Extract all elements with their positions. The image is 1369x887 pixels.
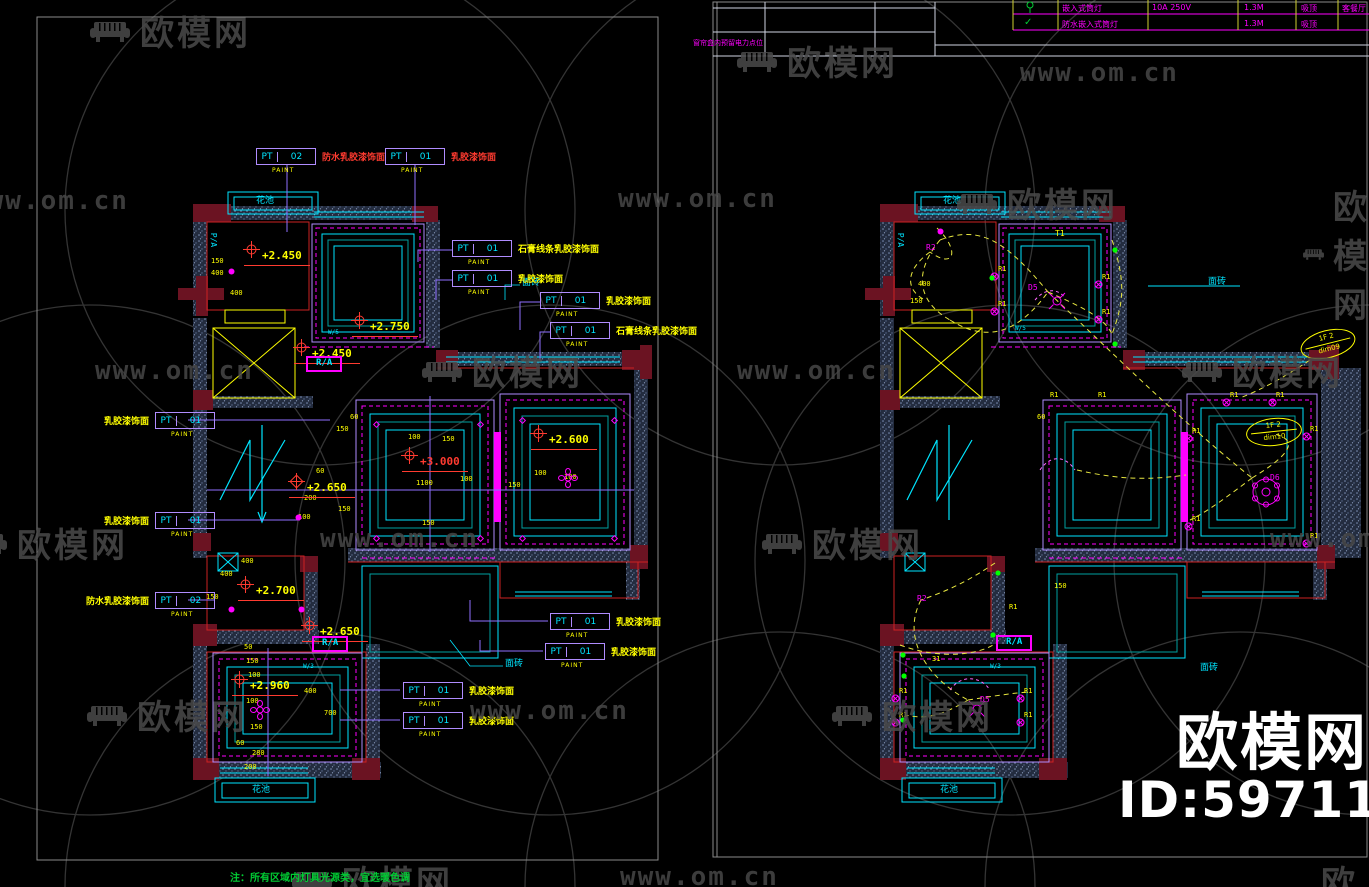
label-r1: R1 xyxy=(1050,392,1058,399)
paint-callout: PT01PAINT乳胶漆饰面 xyxy=(403,682,463,708)
downlight-diamond-symbol xyxy=(610,412,619,428)
device-dot xyxy=(228,262,235,278)
elevation-marker: +2.960 xyxy=(250,674,290,693)
paint-desc: 乳胶漆饰面 xyxy=(611,645,656,658)
label-700: 700 xyxy=(324,710,337,717)
junction-dot xyxy=(1112,334,1118,350)
label-400: 400 xyxy=(230,290,243,297)
legend-cell: 吸顶 xyxy=(1301,19,1317,30)
paint-code-box: PT01 xyxy=(155,412,215,429)
label-400: 400 xyxy=(220,571,233,578)
elevation-marker: +2.750 xyxy=(370,315,410,334)
site-url-watermark: www.om.cn xyxy=(1020,58,1179,88)
site-url-watermark: www.om.cn xyxy=(737,356,896,386)
ceiling-fan-symbol xyxy=(250,700,270,723)
label-31: 31 xyxy=(932,656,940,663)
label-花池: 花池 xyxy=(940,786,958,795)
paint-callout: PT01PAINT乳胶漆饰面 xyxy=(550,613,610,639)
legend-cell: 10A 250V xyxy=(1152,3,1191,12)
label-200: 200 xyxy=(244,764,257,771)
paint-code-box: PT02 xyxy=(155,592,215,609)
legend-symbol xyxy=(1024,1,1036,15)
downlight-diamond-symbol xyxy=(518,412,527,428)
note-lighting: 注：所有区域内灯具光源类，宜选暖色调 xyxy=(230,874,410,884)
downlight-symbol xyxy=(990,303,999,319)
junction-dot xyxy=(901,666,907,682)
lamp-d5-symbol xyxy=(1046,290,1068,315)
site-url-watermark: www.om.cn xyxy=(1270,524,1369,554)
paint-desc: 石膏线条乳胶漆饰面 xyxy=(518,242,599,255)
label-150: 150 xyxy=(910,298,923,305)
paint-code-box: PT01 xyxy=(403,682,463,699)
elevation-marker: +2.600 xyxy=(549,428,589,447)
label-60: 60 xyxy=(316,468,324,475)
return-air-tag: R/A xyxy=(312,636,348,652)
label-d5: D5 xyxy=(1028,284,1038,292)
label-r1: R1 xyxy=(1024,712,1032,719)
paint-callout: PT01PAINT乳胶漆饰面 xyxy=(155,512,215,538)
device-dot xyxy=(295,508,302,524)
label-r1: R1 xyxy=(1192,516,1200,523)
site-url-watermark: www.om.cn xyxy=(95,356,254,386)
site-logo-watermark: 欧模网 xyxy=(1290,856,1369,887)
paint-code-box: PT01 xyxy=(545,643,605,660)
site-logo-watermark: 欧模网 xyxy=(420,346,583,395)
paint-desc: 乳胶漆饰面 xyxy=(616,615,661,628)
label-面砖: 面砖 xyxy=(1200,664,1218,673)
label-150: 150 xyxy=(508,482,521,489)
label-150: 150 xyxy=(338,506,351,513)
paint-code-box: PT02 xyxy=(256,148,316,165)
downlight-symbol xyxy=(1302,428,1311,444)
site-id-block: 欧模网 ID:597117 xyxy=(1118,712,1368,827)
label-花池: 花池 xyxy=(252,786,270,795)
label-150: 150 xyxy=(1054,583,1067,590)
paint-callout: PT01PAINT乳胶漆饰面 xyxy=(403,712,463,738)
paint-callout: PT01PAINT石膏线条乳胶漆饰面 xyxy=(550,322,610,348)
return-air-tag: R/A xyxy=(996,635,1032,651)
label-r1: R1 xyxy=(1009,604,1017,611)
label-r1: R1 xyxy=(1310,426,1318,433)
label-280: 280 xyxy=(252,750,265,757)
paint-desc: 乳胶漆饰面 xyxy=(606,294,651,307)
label-60: 60 xyxy=(236,740,244,747)
paint-callout: PT01PAINT乳胶漆饰面 xyxy=(385,148,445,174)
label-r1: R1 xyxy=(1102,274,1110,281)
watermark-model-id: ID:597117 xyxy=(1118,774,1368,827)
label-400: 400 xyxy=(918,281,931,288)
label-w/5: W/5 xyxy=(1015,326,1026,332)
downlight-symbol xyxy=(1094,276,1103,292)
downlight-symbol xyxy=(1016,714,1025,730)
downlight-symbol xyxy=(1184,518,1193,534)
label-50: 50 xyxy=(244,644,252,651)
paint-desc: 防水乳胶漆饰面 xyxy=(86,594,149,607)
paint-callout: PT01PAINT石膏线条乳胶漆饰面 xyxy=(452,240,512,266)
label-面砖: 面砖 xyxy=(1208,278,1226,287)
label-r1: R1 xyxy=(998,266,1006,273)
label-r1: R1 xyxy=(1098,392,1106,399)
site-logo-watermark: 欧模网 xyxy=(0,518,128,567)
paint-callout: PT02PAINT防水乳胶漆饰面 xyxy=(155,592,215,618)
label-面砖: 面砖 xyxy=(505,660,523,669)
label-60: 60 xyxy=(1037,414,1045,421)
legend-cell: 1.3M xyxy=(1244,3,1264,12)
label-100: 100 xyxy=(460,476,473,483)
paint-code-box: PT01 xyxy=(155,512,215,529)
cad-drawing-viewer: 花池花池花池花池面砖面砖面砖面砖P/AP/AW/5W/3W/5W/3T1R2R2… xyxy=(0,0,1369,887)
paint-callout: PT01PAINT乳胶漆饰面 xyxy=(545,643,605,669)
site-url-watermark: www.om.cn xyxy=(0,186,129,216)
label-100: 100 xyxy=(408,434,421,441)
junction-dot xyxy=(900,645,906,661)
site-url-watermark: www.om.cn xyxy=(470,696,629,726)
ceiling-fan-symbol xyxy=(558,468,578,491)
label-400: 400 xyxy=(241,558,254,565)
paint-code-box: PT01 xyxy=(540,292,600,309)
label-r1: R1 xyxy=(1024,688,1032,695)
label-60: 60 xyxy=(350,414,358,421)
label-100: 100 xyxy=(534,470,547,477)
paint-desc: 乳胶漆饰面 xyxy=(451,150,496,163)
label-400: 400 xyxy=(211,270,224,277)
paint-callout: PT01PAINT乳胶漆饰面 xyxy=(452,270,512,296)
label-w/5: W/5 xyxy=(328,330,339,336)
label-花池: 花池 xyxy=(256,197,274,206)
circuit-tag: 1F 2dim10 xyxy=(1245,415,1304,449)
label-150: 150 xyxy=(250,724,263,731)
site-url-watermark: www.om.cn xyxy=(618,184,777,214)
elevation-marker: +2.650 xyxy=(307,476,347,495)
paint-code-box: PT01 xyxy=(385,148,445,165)
junction-dot xyxy=(990,625,996,641)
site-logo-watermark: 欧模网 xyxy=(85,690,248,739)
legend-cell: 嵌入式筒灯 xyxy=(1062,3,1102,14)
legend-cell: 防水嵌入式筒灯 xyxy=(1062,19,1118,30)
device-dot xyxy=(937,222,944,238)
legend-symbol: ✓ xyxy=(1024,17,1032,28)
label-p/a: P/A xyxy=(209,233,217,247)
downlight-symbol xyxy=(1016,690,1025,706)
label-t1: T1 xyxy=(1055,230,1065,238)
paint-callout: PT01PAINT乳胶漆饰面 xyxy=(155,412,215,438)
legend-cell: 1.3M xyxy=(1244,19,1264,28)
legend-cell: 客餐厅 xyxy=(1342,3,1366,14)
chandelier-d6-symbol xyxy=(1250,476,1282,511)
site-logo-watermark: 欧模网 xyxy=(760,518,923,567)
junction-dot xyxy=(989,268,995,284)
downlight-symbol xyxy=(1184,430,1193,446)
paint-code-box: PT01 xyxy=(550,322,610,339)
label-r1: R1 xyxy=(1102,309,1110,316)
downlight-symbol xyxy=(1268,394,1277,410)
label-w/3: W/3 xyxy=(990,664,1001,670)
downlight-symbol xyxy=(1222,394,1231,410)
site-logo-watermark: 欧模网 xyxy=(955,178,1118,227)
paint-code-box: PT01 xyxy=(550,613,610,630)
label-400: 400 xyxy=(304,688,317,695)
note-curtain-box: 窗帘盒内预留电力点位 xyxy=(693,40,763,47)
device-dot xyxy=(298,600,305,616)
label-150: 150 xyxy=(246,658,259,665)
label-r1: R1 xyxy=(1192,428,1200,435)
site-logo-watermark: 欧模网 xyxy=(88,6,251,55)
site-url-watermark: www.om.cn xyxy=(320,524,479,554)
paint-code-box: PT01 xyxy=(403,712,463,729)
label-r2: R2 xyxy=(917,595,927,603)
site-url-watermark: www.om.cn xyxy=(620,862,779,887)
paint-desc: 乳胶漆饰面 xyxy=(518,272,563,285)
site-logo-watermark: 欧模网 xyxy=(1180,346,1343,395)
downlight-diamond-symbol xyxy=(610,530,619,546)
elevation-marker: +2.700 xyxy=(256,579,296,598)
paint-callout: PT02PAINT防水乳胶漆饰面 xyxy=(256,148,316,174)
downlight-symbol xyxy=(1094,311,1103,327)
junction-dot xyxy=(995,563,1001,579)
downlight-diamond-symbol xyxy=(372,416,381,432)
label-150: 150 xyxy=(211,258,224,265)
paint-desc: 石膏线条乳胶漆饰面 xyxy=(616,324,697,337)
paint-callout: PT01PAINT乳胶漆饰面 xyxy=(540,292,600,318)
label-1100: 1100 xyxy=(416,480,433,487)
elevation-marker: +3.000 xyxy=(420,450,460,469)
label-150: 150 xyxy=(442,436,455,443)
site-logo-watermark: 欧模网 xyxy=(830,690,993,739)
junction-dot xyxy=(1112,240,1118,256)
label-150: 150 xyxy=(336,426,349,433)
paint-code-box: PT01 xyxy=(452,240,512,257)
label-r2: R2 xyxy=(926,244,936,252)
paint-code-box: PT01 xyxy=(452,270,512,287)
elevation-marker: +2.450 xyxy=(262,244,302,263)
label-w/3: W/3 xyxy=(303,664,314,670)
downlight-diamond-symbol xyxy=(518,530,527,546)
paint-desc: 防水乳胶漆饰面 xyxy=(322,150,385,163)
label-p/a: P/A xyxy=(896,233,904,247)
site-logo-watermark: 欧模网 xyxy=(1302,180,1369,327)
downlight-diamond-symbol xyxy=(476,416,485,432)
device-dot xyxy=(228,600,235,616)
legend-cell: 吸顶 xyxy=(1301,3,1317,14)
watermark-site-name: 欧模网 xyxy=(1118,712,1368,774)
label-r1: R1 xyxy=(998,301,1006,308)
paint-desc: 乳胶漆饰面 xyxy=(104,414,149,427)
return-air-tag: R/A xyxy=(306,356,342,372)
